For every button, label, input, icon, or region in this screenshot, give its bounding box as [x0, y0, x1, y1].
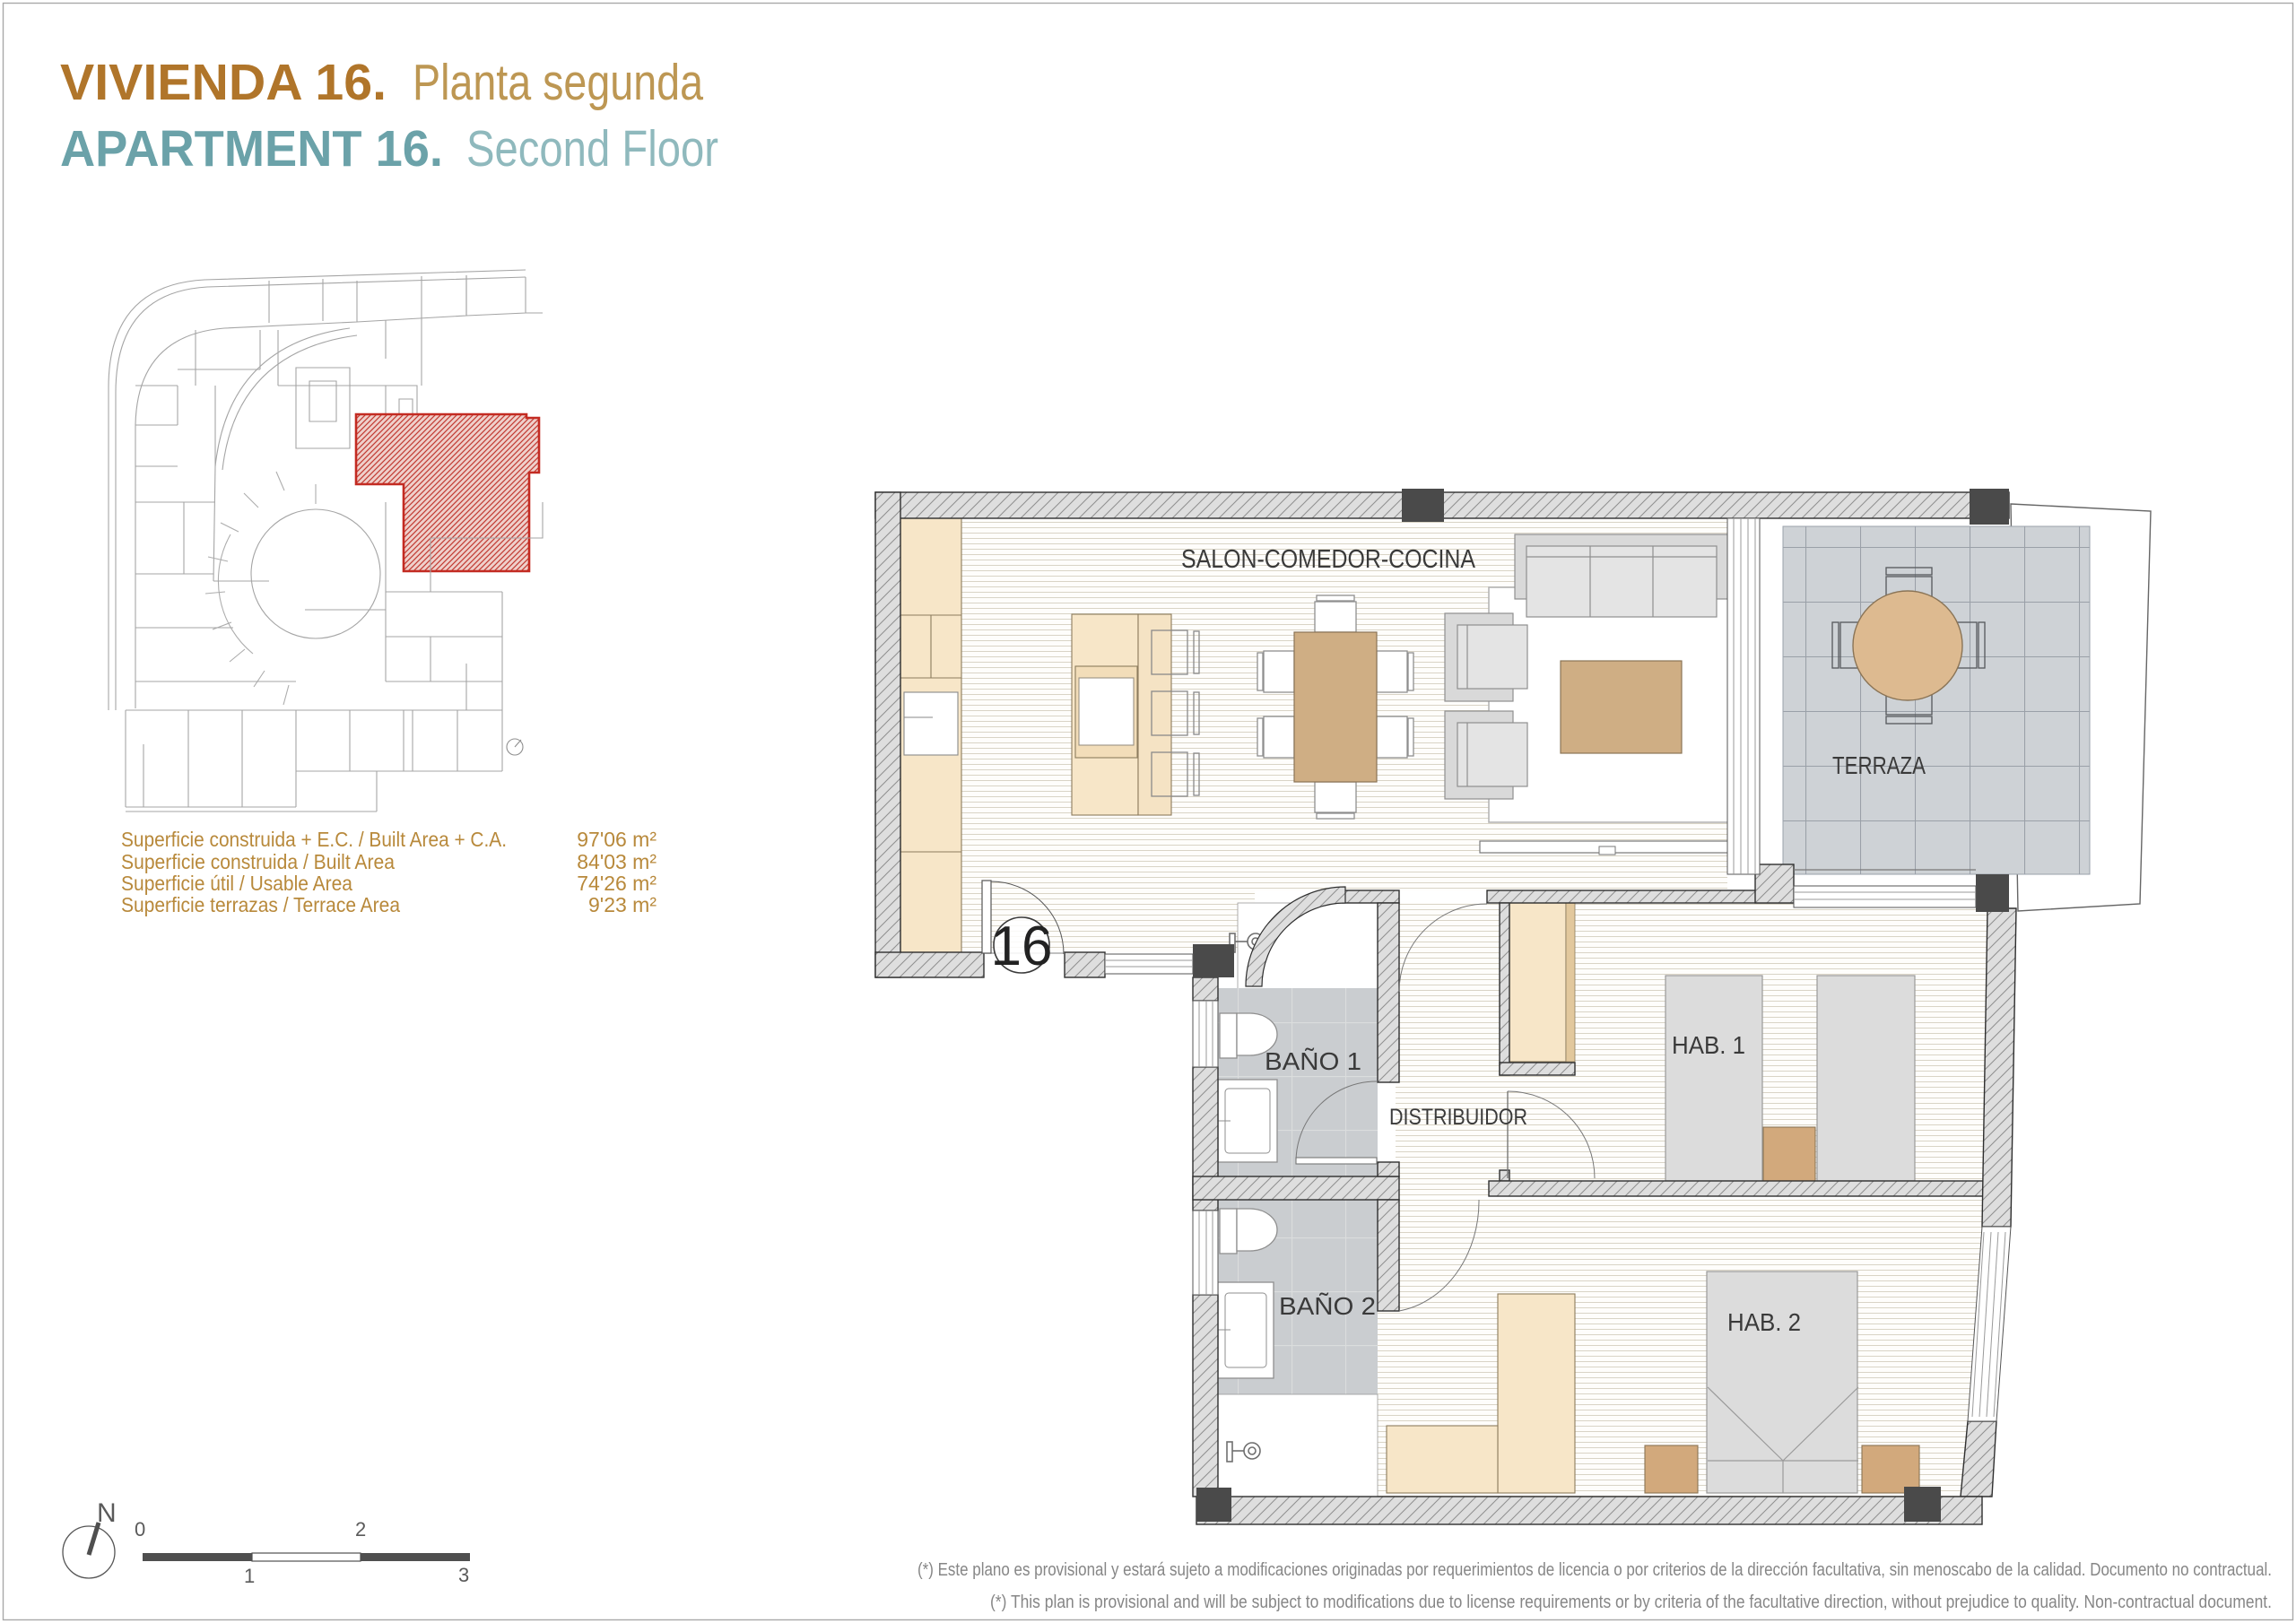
svg-text:VIVIENDA 16.: VIVIENDA 16. — [60, 54, 387, 111]
svg-text:SALON-COMEDOR-COCINA: SALON-COMEDOR-COCINA — [1181, 545, 1476, 574]
svg-text:2: 2 — [355, 1518, 366, 1541]
svg-text:Second Floor: Second Floor — [466, 120, 718, 178]
svg-text:1: 1 — [244, 1565, 255, 1587]
svg-text:TERRAZA: TERRAZA — [1832, 751, 1926, 779]
svg-text:84'03 m²: 84'03 m² — [577, 850, 657, 873]
svg-text:0: 0 — [135, 1518, 145, 1541]
svg-text:16: 16 — [991, 916, 1053, 977]
svg-text:APARTMENT 16.: APARTMENT 16. — [60, 120, 443, 178]
svg-text:HAB. 1: HAB. 1 — [1672, 1031, 1745, 1059]
svg-text:97'06 m²: 97'06 m² — [577, 828, 657, 851]
svg-text:N: N — [97, 1498, 117, 1528]
svg-text:Planta segunda: Planta segunda — [413, 54, 703, 111]
svg-text:Superficie terrazas / Terrace: Superficie terrazas / Terrace Area — [121, 893, 400, 916]
svg-text:74'26 m²: 74'26 m² — [577, 872, 657, 895]
svg-text:BAÑO 2: BAÑO 2 — [1279, 1292, 1376, 1320]
svg-text:Superficie construida / Built: Superficie construida / Built Area — [121, 850, 395, 873]
svg-text:(*) This plan is provisional a: (*) This plan is provisional and will be… — [990, 1592, 2272, 1612]
svg-text:DISTRIBUIDOR: DISTRIBUIDOR — [1389, 1105, 1527, 1130]
svg-text:BAÑO 1: BAÑO 1 — [1265, 1047, 1361, 1075]
svg-text:9'23 m²: 9'23 m² — [588, 893, 657, 916]
svg-text:(*) Este plano es provisional: (*) Este plano es provisional y estará s… — [918, 1559, 2272, 1580]
svg-text:Superficie útil / Usable Area: Superficie útil / Usable Area — [121, 872, 352, 895]
svg-text:HAB. 2: HAB. 2 — [1727, 1308, 1801, 1336]
svg-text:Superficie construida + E.C. /: Superficie construida + E.C. / Built Are… — [121, 828, 507, 851]
svg-text:3: 3 — [458, 1564, 469, 1586]
